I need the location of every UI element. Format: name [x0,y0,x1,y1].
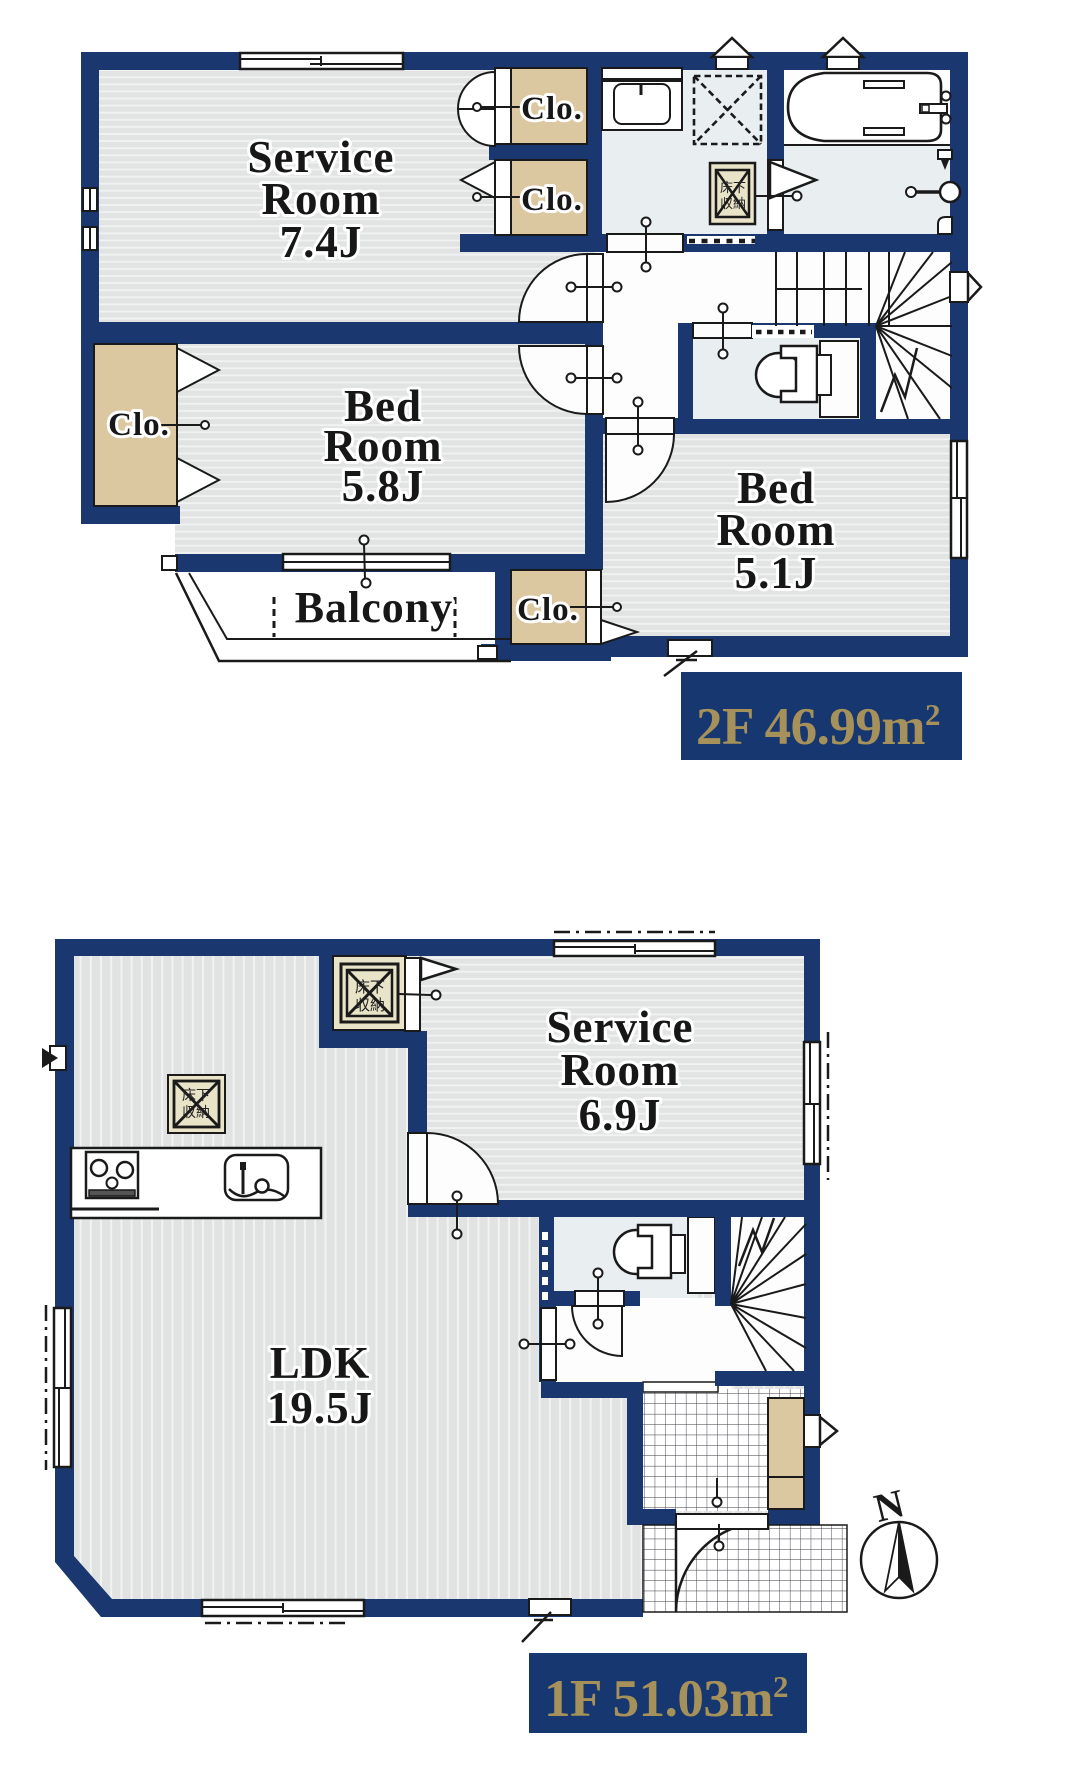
svg-text:5.8J: 5.8J [342,461,425,511]
svg-text:6.9J: 6.9J [579,1090,662,1140]
svg-text:5.1J: 5.1J [735,548,818,598]
svg-text:1F 51.03m2: 1F 51.03m2 [544,1669,788,1728]
svg-text:収納: 収納 [182,1105,210,1121]
svg-text:収納: 収納 [720,196,746,211]
svg-text:床下: 床下 [720,180,746,195]
svg-text:Clo.: Clo. [108,407,170,443]
svg-text:Room: Room [561,1045,680,1095]
svg-text:7.4J: 7.4J [280,217,363,267]
svg-text:Clo.: Clo. [521,91,583,127]
svg-text:LDK: LDK [270,1338,371,1388]
svg-text:収納: 収納 [355,997,385,1014]
svg-text:19.5J: 19.5J [267,1383,373,1433]
svg-text:2F 46.99m2: 2F 46.99m2 [696,697,940,756]
svg-text:Clo.: Clo. [521,182,583,218]
svg-text:床下: 床下 [355,979,385,996]
svg-text:Balcony: Balcony [295,583,454,632]
svg-text:床下: 床下 [182,1088,210,1104]
svg-text:Clo.: Clo. [517,592,579,628]
